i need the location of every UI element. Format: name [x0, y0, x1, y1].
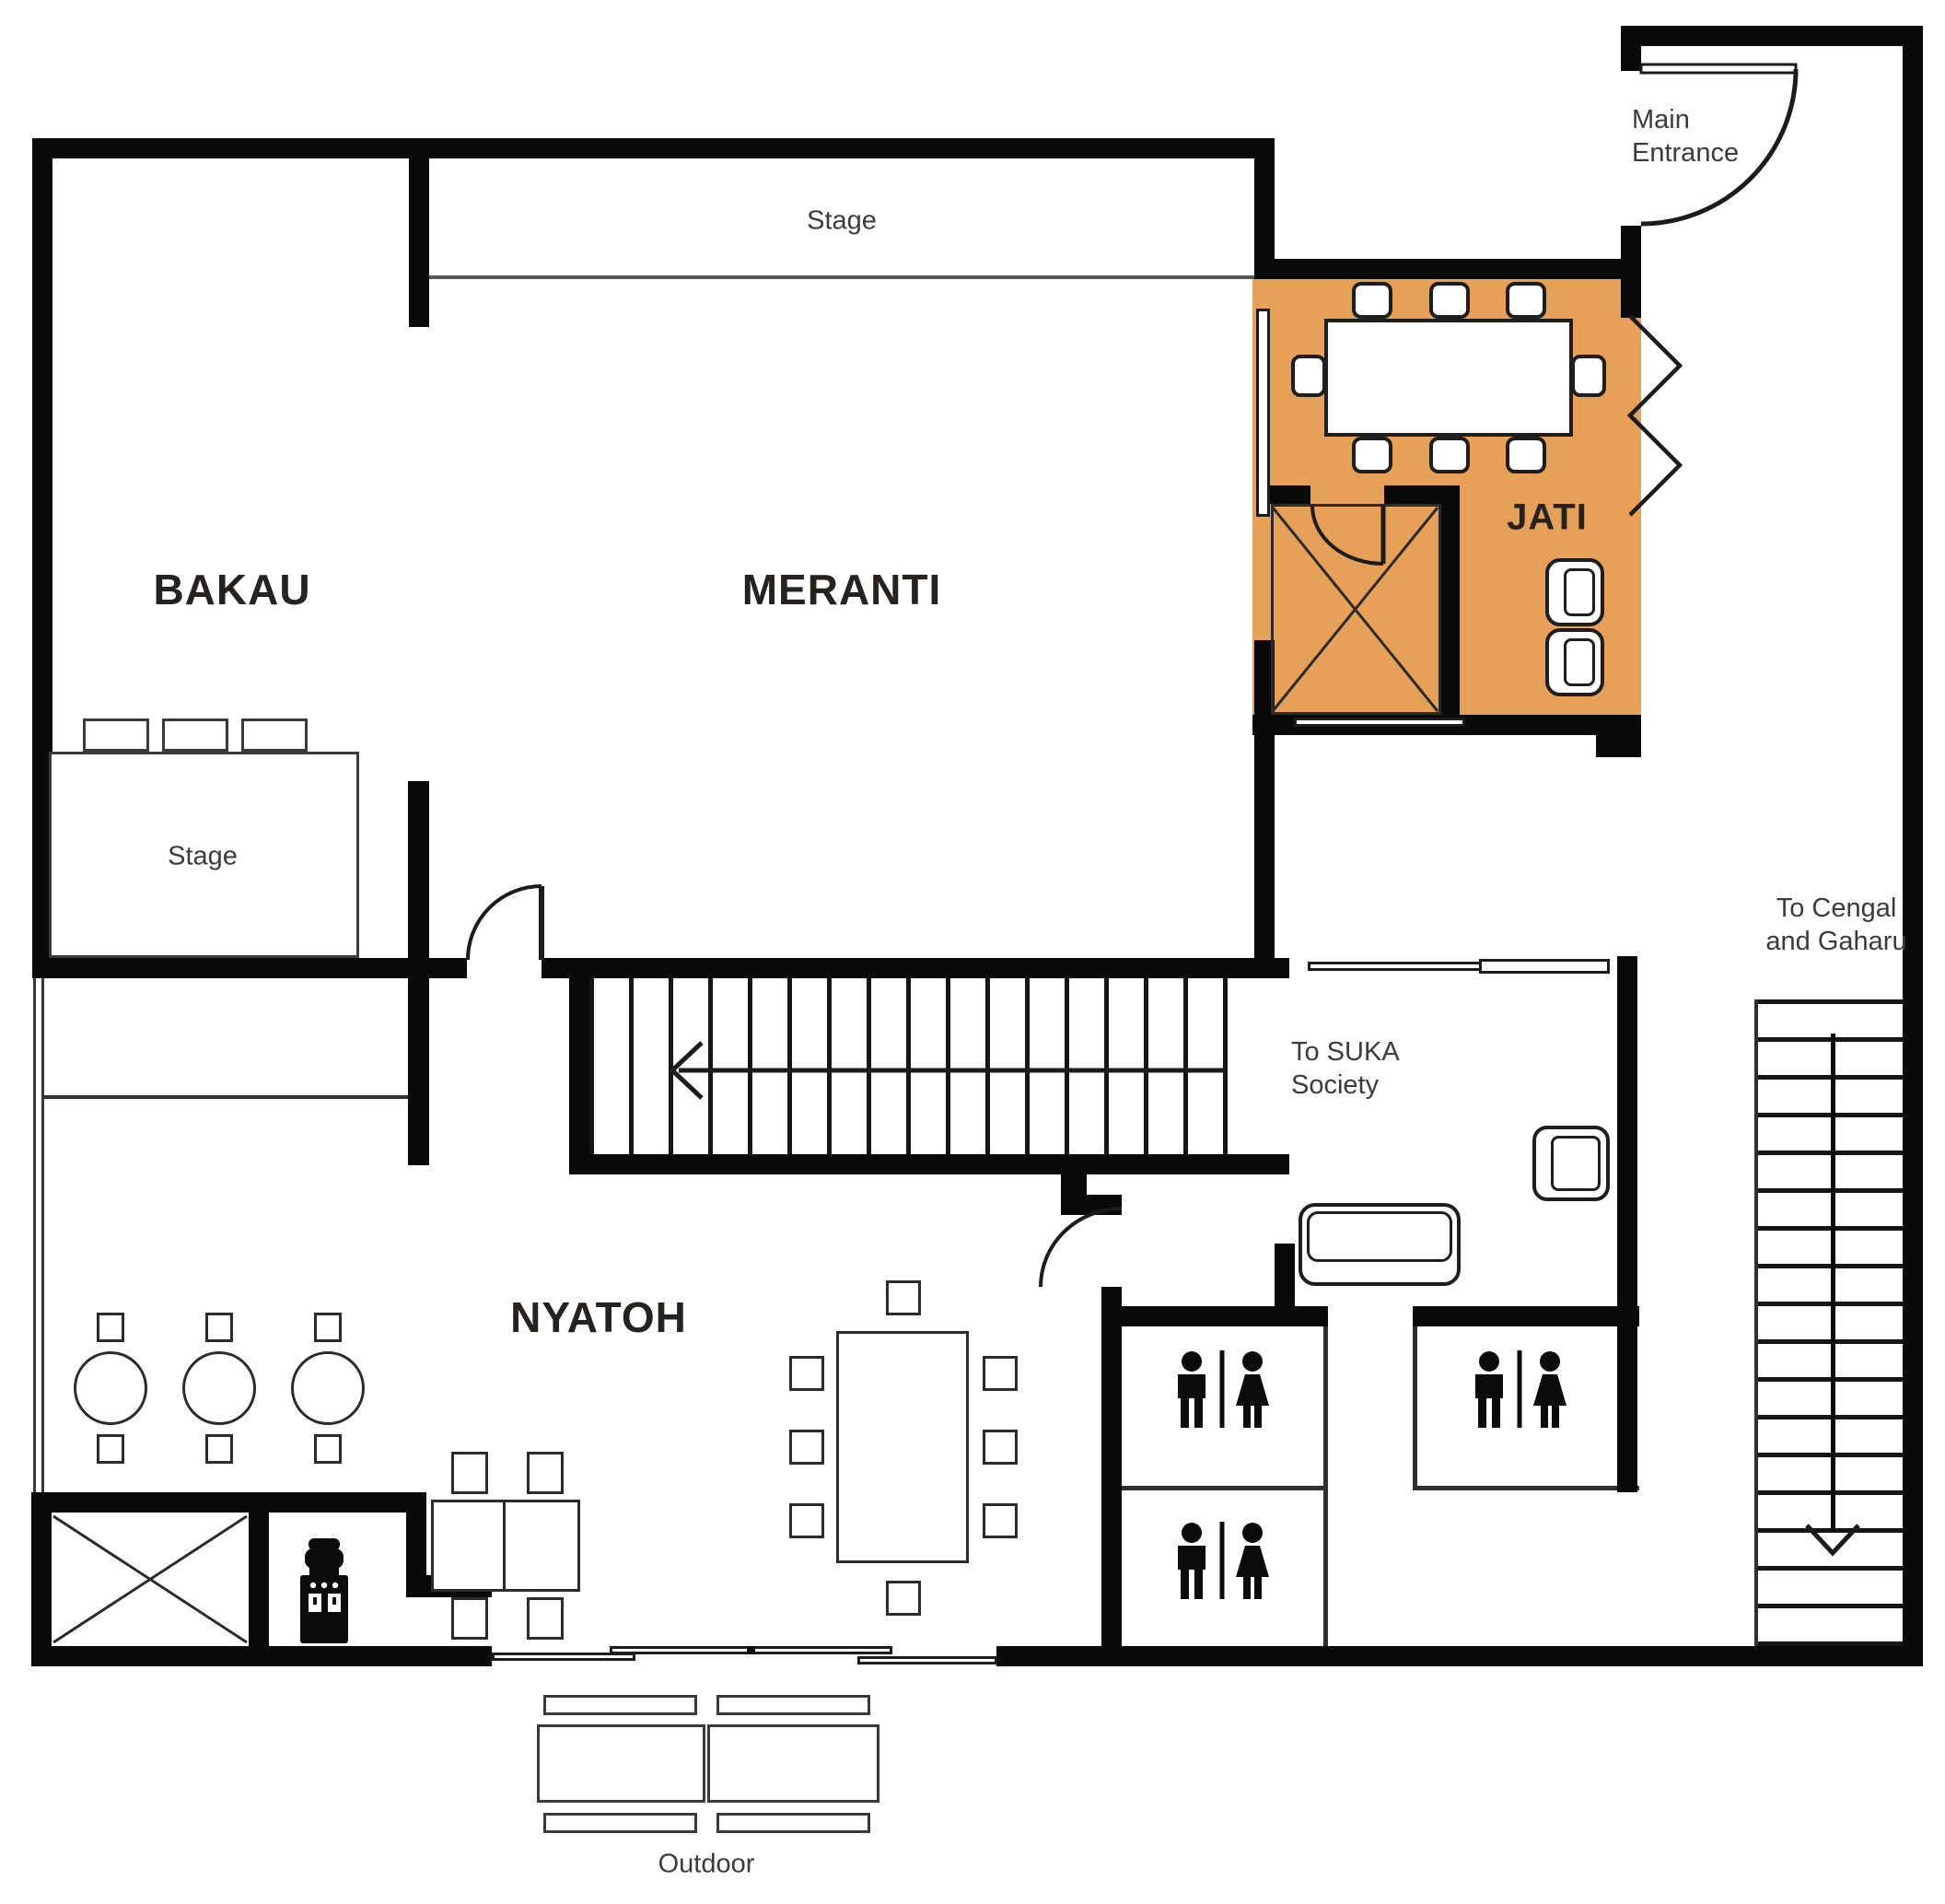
- plan-symbols: [0, 0, 1945, 1904]
- room-label-nyatoh: NYATOH: [510, 1292, 687, 1342]
- outdoor-label: Outdoor: [658, 1850, 755, 1880]
- door-swing-icon: [468, 886, 542, 960]
- stage-label-top: Stage: [807, 206, 877, 237]
- to-suka-society-label: To SUKA Society: [1291, 1035, 1400, 1102]
- male-female-restroom-icon: [1178, 1350, 1269, 1428]
- male-female-restroom-icon: [1178, 1522, 1269, 1599]
- elevator-x-icon: [53, 508, 1438, 1642]
- accordion-folding-door-icon: [1630, 316, 1680, 515]
- to-cengal-gaharu-label: To Cengal and Gaharu: [1765, 892, 1906, 958]
- stairs-down-arrow-icon: [1807, 1525, 1858, 1553]
- main-entrance-label: Main Entrance: [1632, 103, 1739, 169]
- room-label-jati: JATI: [1507, 497, 1588, 539]
- floor-plan: BAKAU MERANTI JATI NYATOH Stage Stage Ma…: [0, 0, 1945, 1904]
- water-dispenser-icon: [300, 1538, 348, 1643]
- room-label-bakau: BAKAU: [153, 565, 310, 614]
- door-swing-icon: [1312, 506, 1383, 564]
- room-label-meranti: MERANTI: [742, 565, 942, 614]
- male-female-restroom-icon: [1475, 1350, 1566, 1428]
- door-swing-icon: [1041, 1209, 1122, 1287]
- stage-label-left: Stage: [168, 842, 238, 872]
- stairs-exit-arrow-icon: [672, 1043, 1225, 1098]
